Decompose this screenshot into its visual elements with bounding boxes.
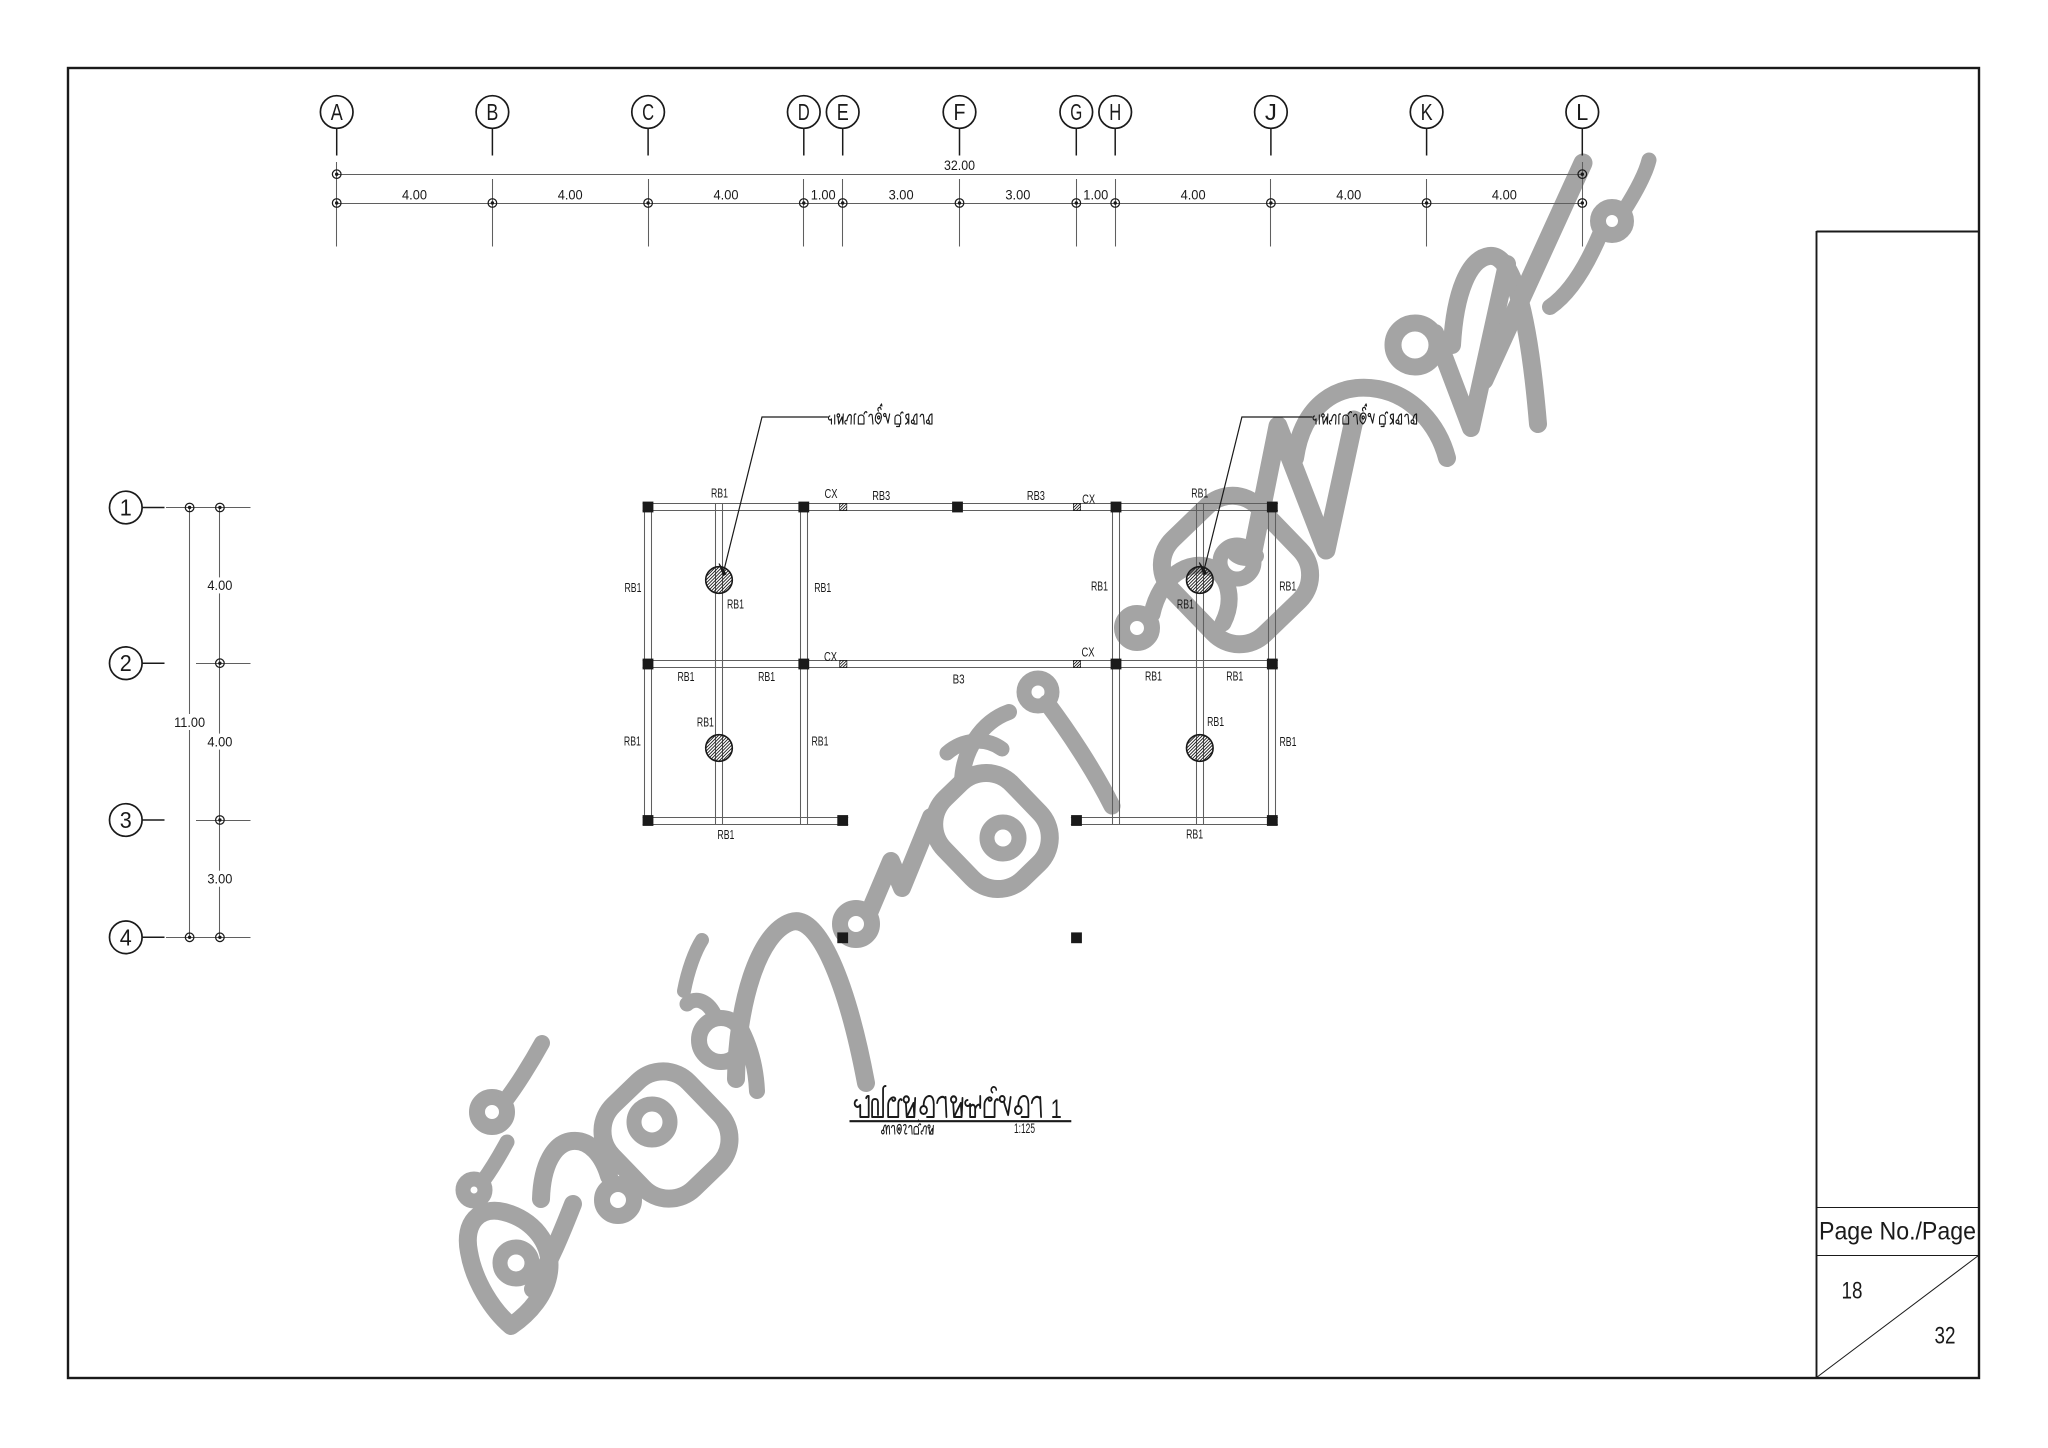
svg-text:RB1: RB1: [1145, 668, 1162, 683]
svg-text:1: 1: [1051, 1094, 1062, 1124]
svg-text:1:125: 1:125: [1014, 1121, 1035, 1136]
svg-text:CX: CX: [824, 649, 837, 664]
svg-text:3.00: 3.00: [1005, 188, 1030, 203]
svg-text:4.00: 4.00: [1181, 188, 1206, 203]
svg-text:RB1: RB1: [678, 669, 695, 684]
svg-text:4.00: 4.00: [714, 188, 739, 203]
svg-text:RB1: RB1: [1186, 827, 1203, 842]
svg-text:CX: CX: [1082, 492, 1095, 507]
svg-text:RB1: RB1: [1177, 596, 1194, 611]
svg-text:Page No./Page: Page No./Page: [1819, 1218, 1976, 1246]
svg-text:4.00: 4.00: [207, 734, 232, 749]
svg-text:E: E: [837, 99, 849, 125]
svg-text:3.00: 3.00: [207, 872, 232, 887]
svg-text:4.00: 4.00: [207, 578, 232, 593]
svg-text:B: B: [486, 99, 498, 125]
svg-text:C: C: [642, 99, 654, 125]
svg-text:1.00: 1.00: [1083, 188, 1108, 203]
svg-text:32.00: 32.00: [944, 158, 975, 173]
svg-text:RB1: RB1: [1279, 579, 1296, 594]
svg-text:RB1: RB1: [717, 827, 734, 842]
svg-text:3: 3: [120, 807, 132, 833]
svg-text:RB1: RB1: [1280, 734, 1297, 749]
svg-text:RB1: RB1: [1207, 714, 1224, 729]
svg-text:18: 18: [1842, 1278, 1863, 1305]
svg-text:4.00: 4.00: [1336, 188, 1361, 203]
svg-text:RB1: RB1: [1091, 579, 1108, 594]
svg-text:CX: CX: [825, 486, 838, 501]
svg-text:RB1: RB1: [624, 733, 641, 748]
svg-text:4.00: 4.00: [558, 188, 583, 203]
svg-text:RB1: RB1: [711, 486, 728, 501]
svg-text:G: G: [1070, 99, 1082, 125]
svg-text:RB1: RB1: [727, 597, 744, 612]
svg-text:RB1: RB1: [625, 580, 642, 595]
svg-text:1: 1: [120, 495, 132, 521]
svg-text:RB3: RB3: [1027, 488, 1045, 503]
svg-text:3.00: 3.00: [889, 188, 914, 203]
svg-text:4.00: 4.00: [1492, 188, 1517, 203]
svg-text:1.00: 1.00: [811, 188, 836, 203]
svg-text:L: L: [1576, 99, 1588, 125]
svg-text:4: 4: [120, 924, 132, 950]
svg-text:RB1: RB1: [697, 714, 714, 729]
svg-text:A: A: [331, 99, 344, 125]
svg-text:RB3: RB3: [872, 488, 890, 503]
svg-text:RB1: RB1: [814, 580, 831, 595]
svg-text:2: 2: [120, 650, 132, 676]
svg-text:H: H: [1109, 99, 1121, 125]
svg-text:RB1: RB1: [812, 733, 829, 748]
svg-text:11.00: 11.00: [174, 715, 205, 730]
svg-text:RB1: RB1: [758, 669, 775, 684]
svg-text:4.00: 4.00: [402, 188, 427, 203]
svg-text:F: F: [954, 99, 966, 125]
svg-text:K: K: [1421, 99, 1434, 125]
svg-text:RB1: RB1: [1191, 486, 1208, 501]
svg-text:RB1: RB1: [1226, 668, 1243, 683]
svg-text:32: 32: [1935, 1323, 1956, 1350]
svg-text:B3: B3: [953, 672, 965, 687]
svg-text:J: J: [1265, 99, 1277, 125]
svg-text:CX: CX: [1082, 645, 1095, 660]
svg-text:D: D: [798, 99, 810, 125]
